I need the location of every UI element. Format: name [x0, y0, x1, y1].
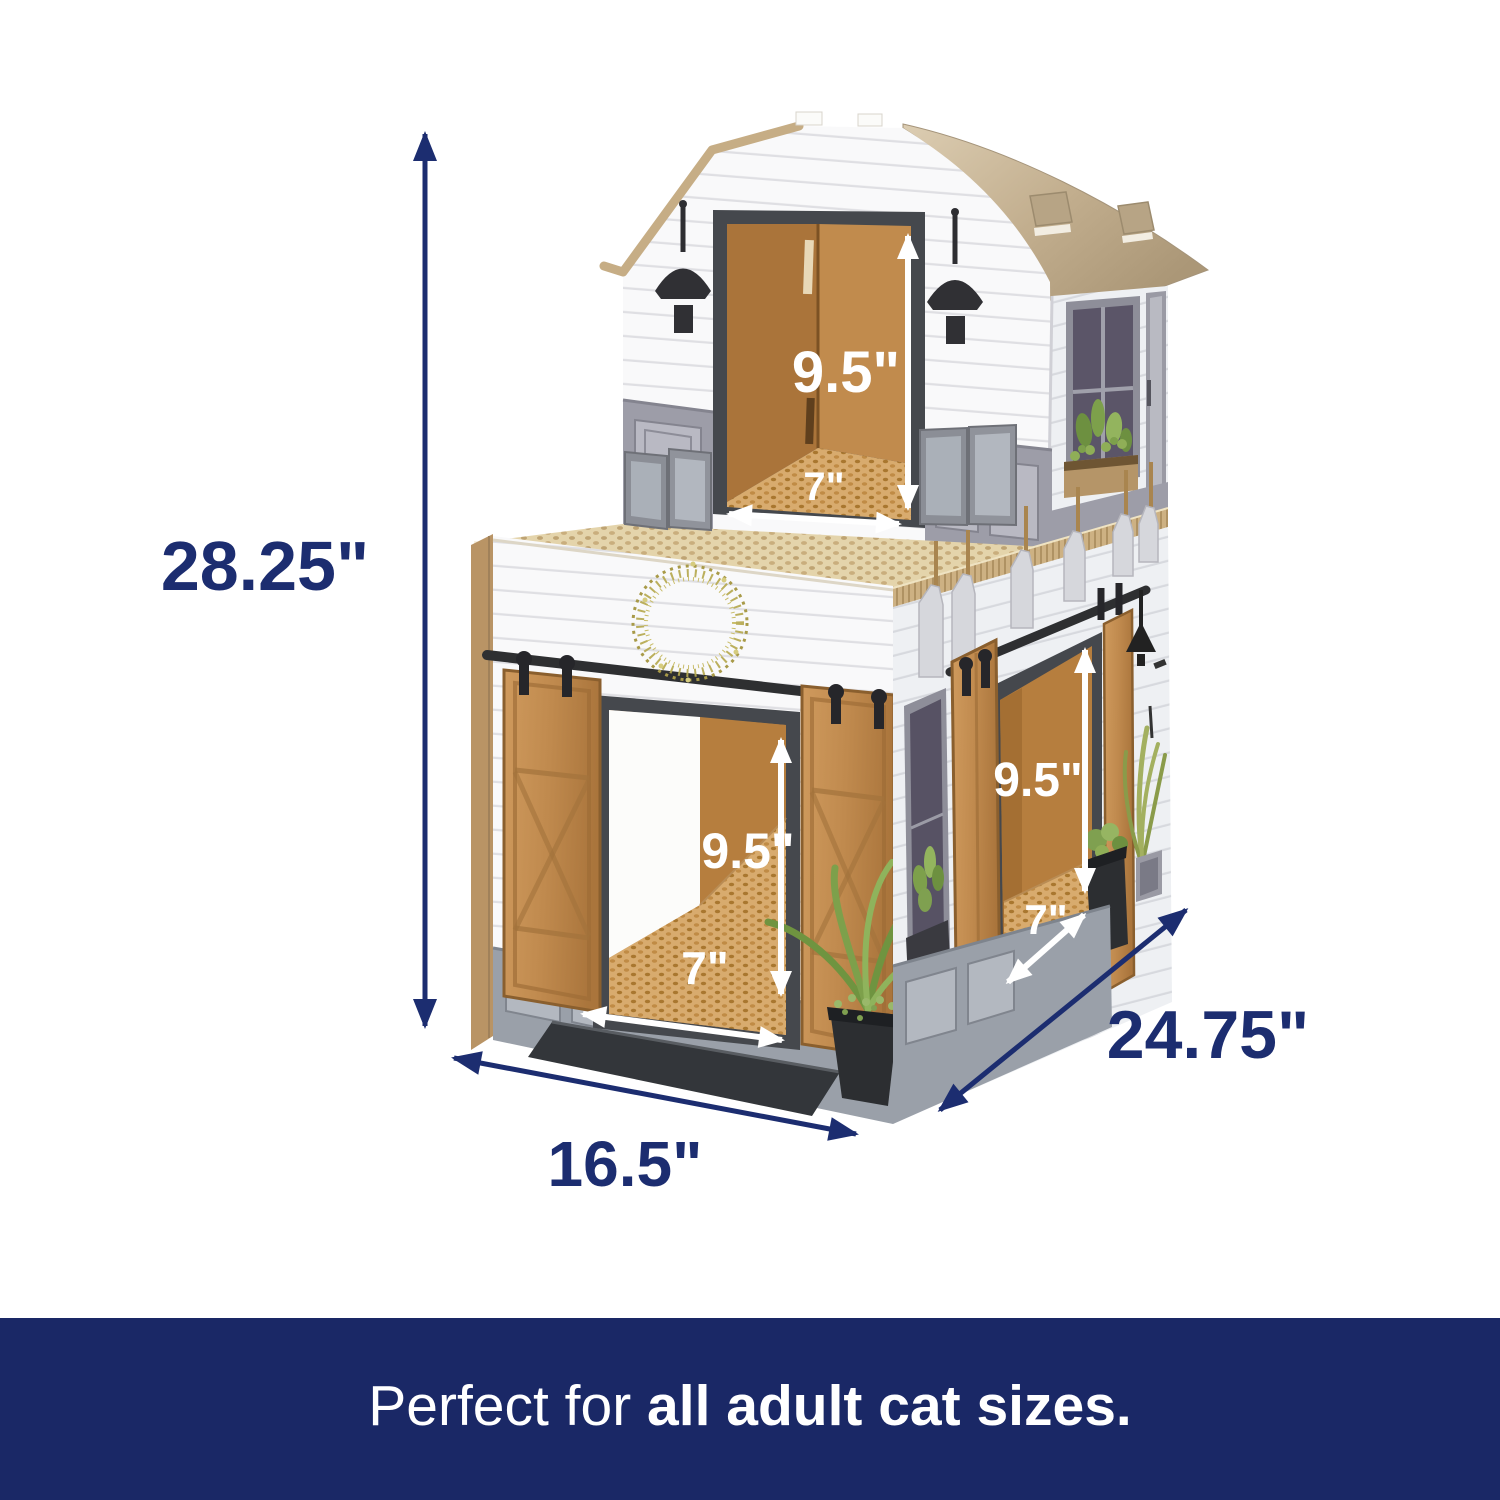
loft-door-width-label: 7": [803, 465, 844, 509]
loft-side-window: [1064, 296, 1140, 498]
front-door-width-label: 7": [681, 942, 728, 994]
dimension-illustration: 9.5" 7": [0, 0, 1500, 1500]
ridge-tab: [796, 112, 822, 125]
width-dimension-label: 24.75": [1107, 997, 1309, 1073]
side-door-height-label: 9.5": [993, 754, 1082, 807]
loft-door-height-label: 9.5": [792, 340, 900, 405]
side-small-window: [1136, 850, 1162, 902]
side-window: [904, 688, 950, 980]
product-dimensions-image: 9.5" 7": [0, 0, 1500, 1500]
front-door-height-label: 9.5": [701, 823, 794, 879]
ridge-tab: [858, 114, 882, 126]
side-door-width-label: 7": [1024, 896, 1067, 943]
banner-text-regular: Perfect for: [368, 1374, 647, 1438]
depth-dimension-label: 16.5": [548, 1128, 703, 1200]
footer-banner: Perfect for all adult cat sizes.: [0, 1318, 1500, 1500]
roof-hatch: [1118, 202, 1154, 243]
banner-text-bold: all adult cat sizes.: [647, 1374, 1132, 1438]
roof-hatch: [1030, 192, 1072, 236]
barn-door-left: [504, 651, 600, 1012]
height-dimension-label: 28.25": [161, 527, 369, 605]
